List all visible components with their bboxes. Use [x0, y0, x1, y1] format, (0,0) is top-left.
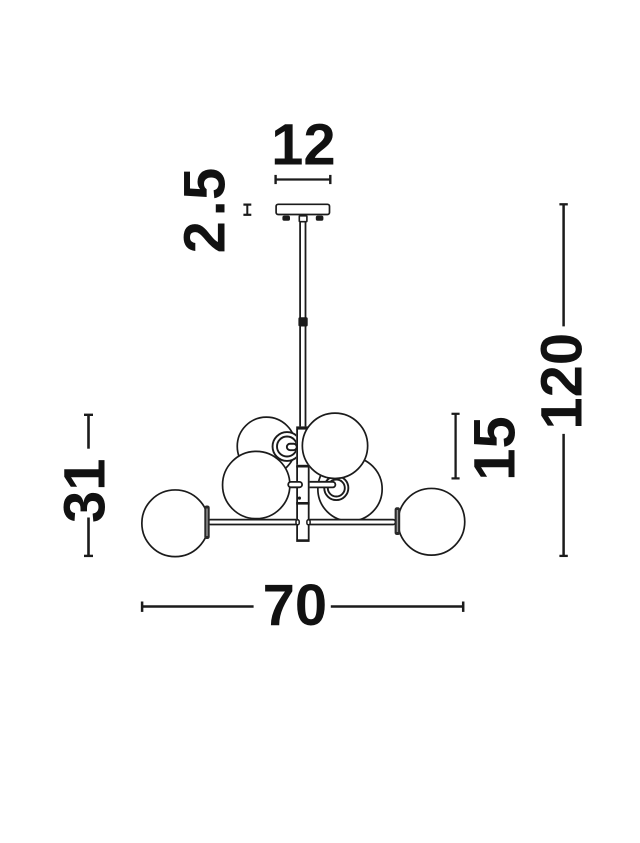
- svg-text:31: 31: [53, 459, 118, 524]
- svg-text:2.5: 2.5: [173, 165, 238, 253]
- svg-text:15: 15: [463, 416, 528, 481]
- svg-text:12: 12: [271, 112, 336, 177]
- svg-text:70: 70: [263, 573, 328, 638]
- svg-text:120: 120: [529, 333, 594, 430]
